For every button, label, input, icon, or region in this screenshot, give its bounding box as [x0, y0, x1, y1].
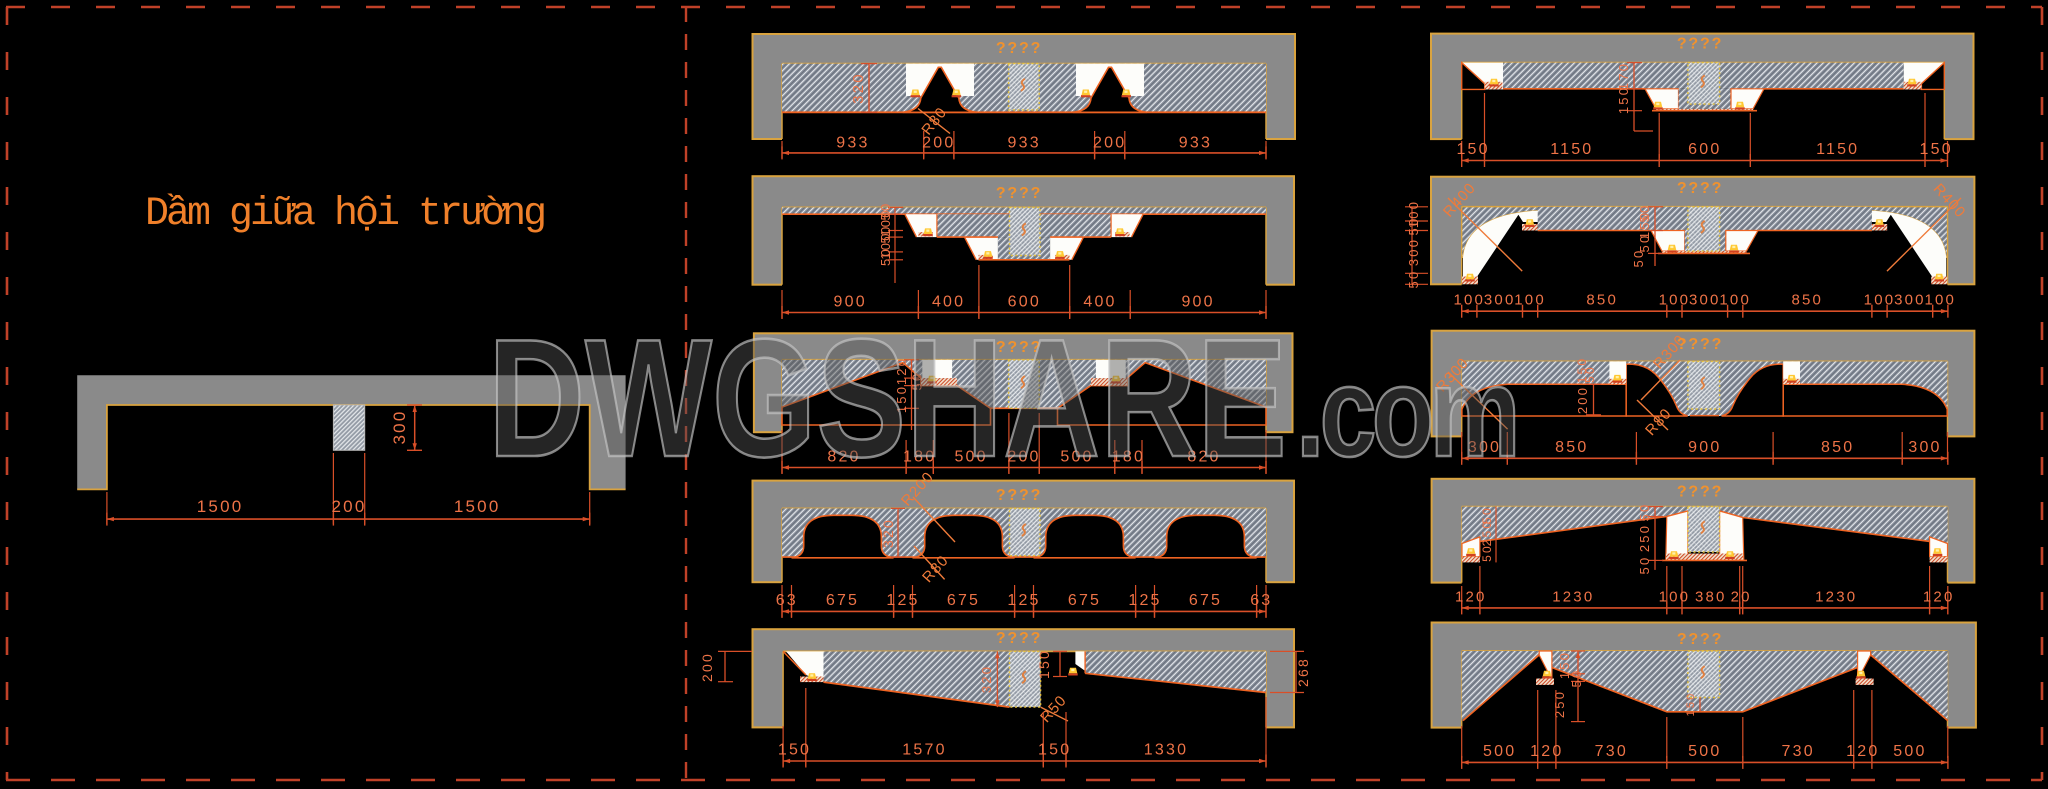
svg-text:200: 200	[699, 652, 715, 682]
svg-text:125: 125	[1007, 592, 1040, 609]
svg-text:50: 50	[1637, 556, 1652, 575]
svg-text:850: 850	[1586, 292, 1618, 309]
svg-text:150: 150	[1920, 141, 1953, 158]
svg-text:1230: 1230	[1552, 589, 1594, 606]
svg-text:63: 63	[776, 592, 798, 609]
svg-text:100: 100	[1453, 292, 1485, 309]
svg-text:500: 500	[1483, 743, 1516, 760]
svg-text:300: 300	[1908, 439, 1941, 456]
svg-text:100: 100	[1659, 292, 1691, 309]
svg-text:675: 675	[1189, 592, 1222, 609]
svg-text:850: 850	[1791, 292, 1823, 309]
svg-text:250: 250	[1480, 520, 1494, 547]
svg-text:933: 933	[836, 135, 869, 152]
svg-text:1500: 1500	[454, 497, 501, 516]
svg-text:120: 120	[1530, 743, 1563, 760]
svg-text:320: 320	[880, 518, 896, 548]
svg-text:200: 200	[1575, 386, 1590, 414]
svg-text:50: 50	[1480, 544, 1494, 562]
svg-text:200: 200	[922, 135, 955, 152]
svg-text:????: ????	[1677, 484, 1723, 501]
svg-text:????: ????	[1677, 336, 1723, 353]
svg-text:150: 150	[1685, 692, 1697, 717]
svg-text:50: 50	[878, 247, 893, 266]
svg-text:730: 730	[1595, 743, 1628, 760]
svg-text:50: 50	[1583, 365, 1597, 383]
svg-text:150: 150	[1456, 141, 1489, 158]
svg-text:50: 50	[1637, 503, 1652, 522]
svg-text:850: 850	[1821, 439, 1854, 456]
svg-text:????: ????	[996, 40, 1042, 57]
svg-text:150: 150	[1036, 649, 1052, 679]
svg-text:150: 150	[778, 742, 811, 759]
svg-text:50: 50	[1631, 249, 1646, 268]
svg-text:200: 200	[1093, 135, 1126, 152]
svg-text:63: 63	[1250, 592, 1272, 609]
svg-text:1230: 1230	[1815, 589, 1857, 606]
svg-text:150: 150	[1616, 86, 1631, 114]
svg-text:????: ????	[996, 185, 1042, 202]
svg-text:50: 50	[1569, 669, 1584, 688]
svg-text:????: ????	[1677, 180, 1723, 197]
svg-text:320: 320	[850, 72, 867, 104]
svg-text:100: 100	[1514, 292, 1546, 309]
svg-text:300: 300	[1484, 292, 1516, 309]
svg-text:????: ????	[1677, 36, 1723, 53]
svg-text:300: 300	[1894, 292, 1926, 309]
svg-text:300: 300	[1406, 238, 1421, 266]
svg-text:500: 500	[1688, 743, 1721, 760]
svg-text:250: 250	[1552, 690, 1567, 718]
svg-text:125: 125	[1128, 592, 1161, 609]
svg-text:268: 268	[1295, 657, 1311, 687]
svg-text:300: 300	[1689, 292, 1721, 309]
svg-text:500: 500	[1893, 743, 1926, 760]
svg-text:933: 933	[1008, 135, 1041, 152]
svg-text:50: 50	[1406, 217, 1421, 236]
svg-text:1330: 1330	[1144, 742, 1188, 759]
svg-text:730: 730	[1782, 743, 1815, 760]
svg-text:250: 250	[1637, 524, 1652, 552]
svg-text:.com: .com	[1296, 340, 1516, 484]
svg-text:20: 20	[1731, 589, 1752, 606]
svg-text:125: 125	[886, 592, 919, 609]
svg-text:100: 100	[1924, 292, 1956, 309]
svg-text:675: 675	[947, 592, 980, 609]
svg-text:120: 120	[1455, 589, 1487, 606]
svg-text:933: 933	[1179, 135, 1212, 152]
svg-text:600: 600	[1688, 141, 1721, 158]
svg-text:????: ????	[996, 630, 1042, 647]
svg-text:1150: 1150	[1816, 141, 1859, 158]
svg-text:100: 100	[1864, 292, 1896, 309]
svg-text:50: 50	[1406, 270, 1421, 289]
svg-text:120: 120	[1846, 743, 1879, 760]
svg-text:1150: 1150	[1550, 141, 1593, 158]
svg-text:100: 100	[1719, 292, 1751, 309]
svg-text:850: 850	[1555, 439, 1588, 456]
svg-text:200: 200	[332, 497, 367, 516]
svg-text:1570: 1570	[902, 742, 946, 759]
svg-text:380: 380	[1695, 589, 1727, 606]
svg-text:120: 120	[1923, 589, 1955, 606]
svg-text:Dầm giữa hội trường: Dầm giữa hội trường	[145, 192, 544, 237]
svg-text:675: 675	[1068, 592, 1101, 609]
svg-text:????: ????	[1677, 631, 1723, 648]
svg-text:300: 300	[390, 410, 409, 445]
svg-text:675: 675	[826, 592, 859, 609]
svg-text:150: 150	[1038, 742, 1071, 759]
svg-text:DWGSHARE: DWGSHARE	[488, 305, 1287, 493]
svg-text:320: 320	[979, 665, 994, 693]
svg-text:900: 900	[1688, 439, 1721, 456]
svg-text:1500: 1500	[197, 497, 244, 516]
svg-text:100: 100	[1659, 589, 1691, 606]
